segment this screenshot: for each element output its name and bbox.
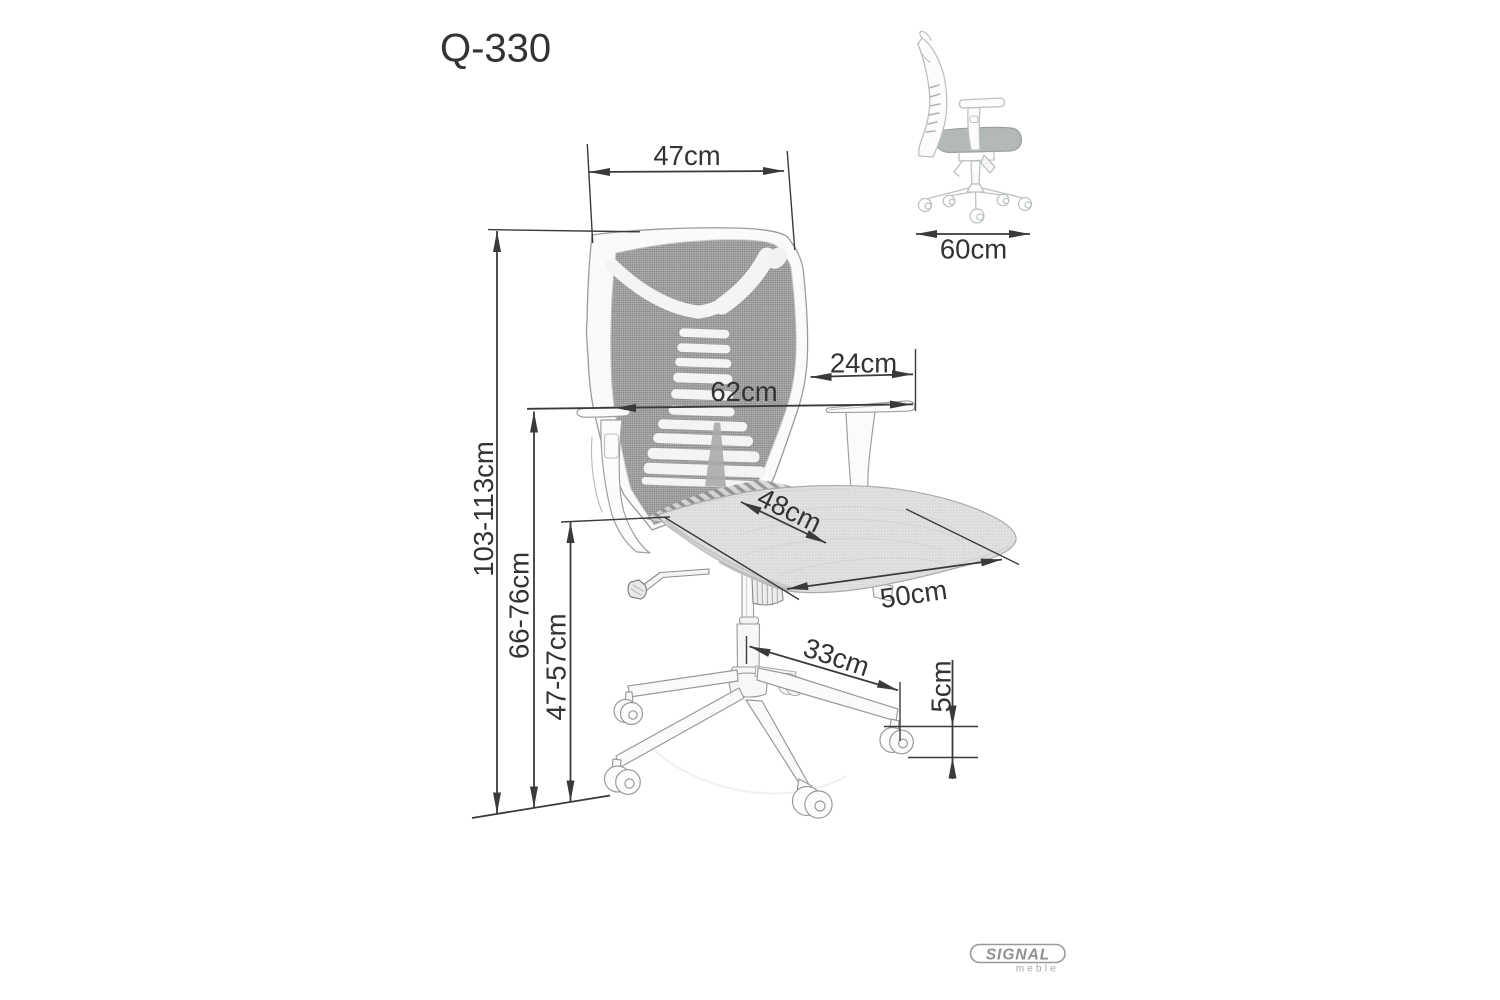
svg-text:meble: meble <box>1016 964 1059 975</box>
svg-text:66-76cm: 66-76cm <box>504 552 535 659</box>
svg-text:60cm: 60cm <box>940 234 1007 265</box>
svg-text:Q-330: Q-330 <box>440 27 551 71</box>
svg-text:SIGNAL: SIGNAL <box>986 947 1051 964</box>
svg-text:47-57cm: 47-57cm <box>541 614 572 721</box>
svg-text:103-113cm: 103-113cm <box>468 441 499 577</box>
svg-text:47cm: 47cm <box>653 140 720 171</box>
svg-text:24cm: 24cm <box>830 348 897 379</box>
svg-text:5cm: 5cm <box>926 661 957 713</box>
svg-text:62cm: 62cm <box>710 376 777 407</box>
